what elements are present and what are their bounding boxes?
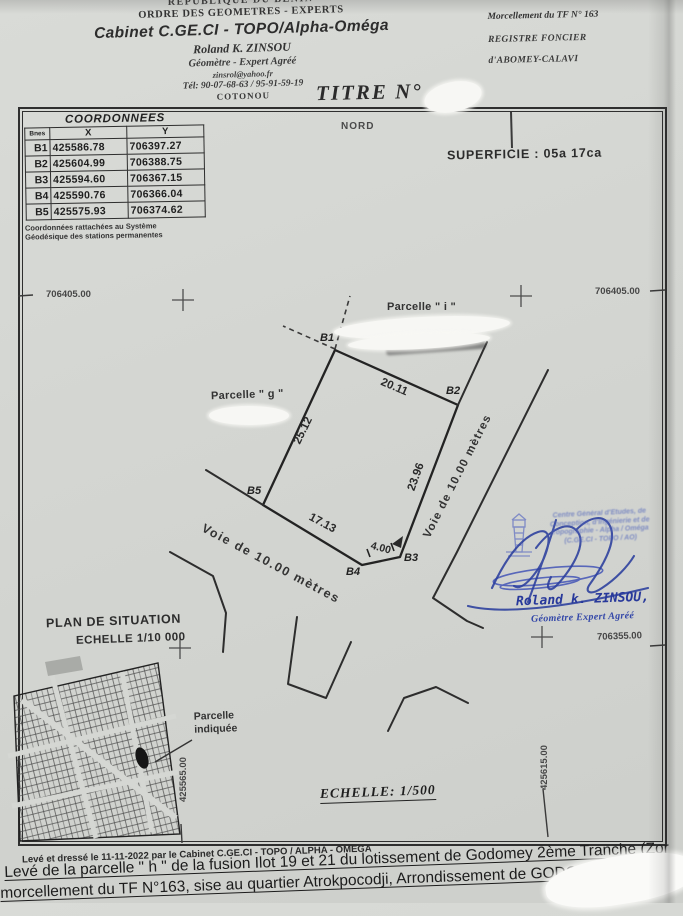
borne-id: B1 [25, 140, 50, 156]
measure-b1-b2: 20.11 [379, 376, 410, 398]
grid-y-right: 706405.00 [595, 286, 640, 297]
indicated-parcel-line2: indiquée [194, 722, 238, 736]
vertex-b3: B3 [404, 552, 418, 564]
vertex-b5: B5 [247, 485, 262, 497]
table-row: B5 425575.93 706374.62 [26, 201, 205, 220]
borne-id: B2 [25, 156, 50, 172]
registre-line: REGISTRE FONCIER [488, 31, 678, 45]
borne-y: 706388.75 [127, 153, 204, 170]
borne-id: B5 [26, 204, 51, 220]
borne-x: 425586.78 [50, 138, 127, 155]
parcel-i-label: Parcelle " i " [387, 301, 456, 313]
north-tick-line [511, 112, 512, 148]
situation-map-gray-patch [45, 656, 83, 676]
grid-x-bottom-right: 425615.00 [539, 745, 550, 790]
borne-x: 425594.60 [50, 170, 127, 187]
borne-id: B4 [26, 188, 51, 204]
measure-b3-b4: 4.00 [369, 540, 392, 557]
measure-b2-b3: 23.96 [406, 461, 427, 492]
geodesic-note: Coordonnées rattachées au Système Géodés… [25, 220, 205, 241]
borne-y: 706366.04 [128, 185, 205, 202]
titre-label: TITRE N° [316, 79, 423, 106]
registry-block: Morcellement du TF N° 163 REGISTRE FONCI… [487, 8, 678, 66]
parcel-g-redaction [209, 406, 289, 425]
measure-b5-b1: 25.12 [292, 415, 315, 446]
grid-y-left: 706405.00 [46, 289, 91, 300]
coordinates-table: COORDONNEES Bnes X Y B1 425586.78 706397… [25, 113, 205, 240]
measurement-labels: 20.11 23.96 4.00 17.13 25.12 [292, 376, 427, 556]
borne-x: 425575.93 [51, 202, 128, 219]
borne-y: 706374.62 [128, 201, 205, 218]
b3-ink-mark [392, 536, 403, 548]
vertex-b1: B1 [320, 332, 334, 344]
geodesic-note-line2: Géodésique des stations permanentes [25, 229, 205, 241]
grid-x-bottom-left: 425565.00 [178, 757, 189, 802]
indicated-parcel-note: Parcelle indiquée [194, 709, 238, 736]
borne-x: 425604.99 [50, 154, 127, 171]
measure-b4-b5: 17.13 [307, 511, 338, 535]
borne-y: 706397.27 [127, 137, 204, 154]
north-label: NORD [341, 121, 374, 132]
vertex-labels: B1 B2 B3 B4 B5 [247, 332, 460, 578]
dashed-boundary-lines [283, 296, 350, 349]
grid-y-right-lower: 706355.00 [597, 630, 642, 643]
borne-id: B3 [25, 172, 50, 188]
borne-y: 706367.15 [127, 169, 204, 186]
scanned-survey-document: { "header": { "republic": "REPUBLIQUE DU… [0, 0, 683, 903]
situation-map [8, 656, 192, 841]
col-bornes: Bnes [25, 128, 50, 140]
vertex-b2: B2 [446, 385, 460, 397]
vertex-b4: B4 [346, 566, 360, 578]
borne-x: 425590.76 [51, 186, 128, 203]
parcel-g-label: Parcelle " g " [211, 388, 284, 403]
superficie-label: SUPERFICIE : 05a 17ca [447, 146, 602, 163]
